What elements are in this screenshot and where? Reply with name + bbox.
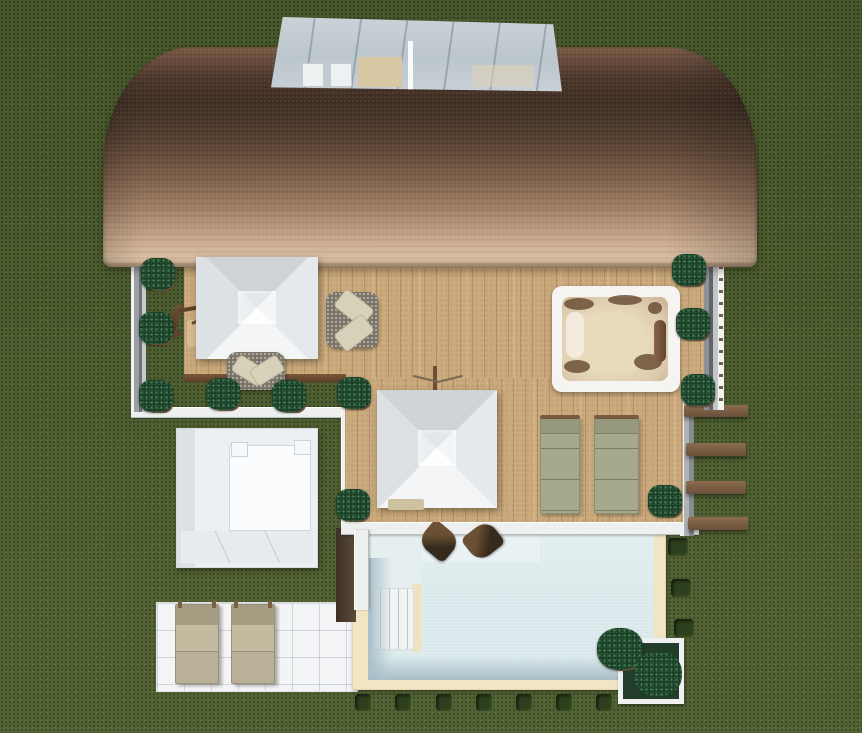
hedge-block	[476, 694, 492, 711]
cantilever-umbrella-lower	[377, 390, 497, 508]
lounger-headrest	[595, 418, 638, 434]
hedge-block	[674, 619, 694, 637]
hot-tub-shading-4	[564, 360, 590, 373]
corner-tree-foliage	[634, 652, 682, 696]
lounger-headrest	[176, 605, 218, 626]
hot-tub-shading-2	[608, 295, 642, 305]
skylight-interior-chair-2	[330, 63, 352, 87]
pavilion-pillow-left	[231, 442, 248, 457]
lounger-leg	[212, 601, 216, 608]
lounger-seat	[176, 625, 218, 652]
hedge-block	[596, 694, 612, 711]
hot-tub	[552, 286, 680, 392]
hot-tub-shading-1	[564, 298, 594, 310]
hedge-block	[671, 579, 691, 597]
hot-tub-towel-roll	[654, 320, 666, 362]
lounger-leg	[234, 601, 238, 608]
boxwood-planter	[139, 312, 173, 344]
umbrella-mat	[388, 499, 424, 510]
garden-daybed-pavilion	[176, 428, 318, 568]
sofa-cushion	[333, 313, 375, 353]
pavilion-pillow-right	[294, 440, 311, 455]
aerial-villa-render	[0, 0, 862, 733]
lounger-headrest	[232, 605, 274, 626]
corner-sofa-upper	[326, 292, 378, 348]
lounger-leg	[178, 601, 182, 608]
boxwood-planter	[672, 254, 706, 286]
pergola-beam-3	[686, 481, 746, 494]
lower-deck-edge-wall	[341, 522, 699, 535]
lounger-leg	[268, 601, 272, 608]
boxwood-planter	[676, 308, 710, 340]
boxwood-planter	[206, 378, 240, 410]
skylight-interior-floor	[358, 57, 402, 87]
patio-sun-lounger-2	[231, 604, 275, 684]
hedge-block	[556, 694, 572, 711]
boxwood-planter	[272, 380, 306, 412]
boxwood-planter	[648, 485, 682, 517]
deck-sun-lounger-2	[594, 417, 639, 514]
hedge-block	[436, 694, 452, 711]
lounger-headrest	[541, 418, 579, 434]
deck-sun-lounger-1	[540, 417, 580, 514]
hot-tub-shading-3	[648, 302, 662, 314]
hedge-block	[668, 538, 688, 556]
hot-tub-seat	[566, 312, 584, 358]
cantilever-umbrella-upper	[196, 257, 318, 359]
boxwood-planter	[336, 489, 370, 521]
skylight-interior-column	[408, 41, 413, 91]
lounger-seat	[232, 625, 274, 652]
pool-side-dark-wall	[336, 528, 356, 622]
roof-skylight	[268, 13, 562, 93]
pool-side-white-wall	[354, 530, 369, 610]
boxwood-planter	[681, 374, 715, 406]
hedge-block	[355, 694, 371, 711]
patio-sun-lounger-1	[175, 604, 219, 684]
pavilion-floor	[181, 531, 313, 563]
pergola-beam-2	[686, 443, 746, 456]
boxwood-planter	[337, 377, 371, 409]
umbrella-vent-lower	[418, 430, 456, 466]
boxwood-planter	[141, 258, 175, 290]
pavilion-mattress	[229, 445, 311, 531]
skylight-interior-chair-1	[302, 63, 324, 87]
hedge-block	[395, 694, 411, 711]
umbrella-vent-upper	[238, 291, 276, 324]
railing-post-ticks	[719, 254, 723, 410]
skylight-interior-counter	[472, 65, 534, 87]
boxwood-planter	[139, 380, 173, 412]
pergola-beam-4	[688, 517, 748, 530]
hedge-block	[516, 694, 532, 711]
